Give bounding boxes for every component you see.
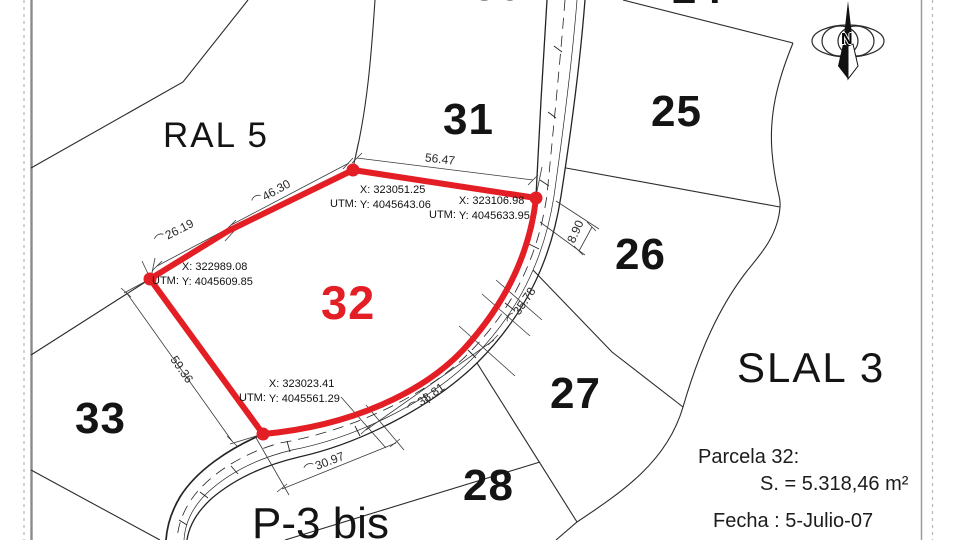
info-parcel-line: Parcela 32: (698, 447, 799, 467)
road-inner-edge-top (536, 0, 547, 196)
utm-x-value: X: 323051.25 (360, 183, 431, 198)
utm-callout-top-left-vertex: UTM: X: 323051.25 Y: 4045643.06 (330, 183, 431, 213)
compass-north-label: N (841, 31, 853, 49)
utm-callout-top-right-vertex: UTM: X: 323106.98 Y: 4045633.95 (429, 194, 530, 224)
utm-x-value: X: 323106.98 (459, 194, 530, 209)
plan-linework (0, 0, 960, 540)
utm-x-value: X: 323023.41 (269, 377, 340, 392)
utm-prefix: UTM: (152, 274, 179, 290)
dimension-56-47: 56.47 (423, 151, 455, 166)
info-area-line: S. = 5.318,46 m² (760, 474, 908, 494)
utm-y-value: Y: 4045643.06 (360, 198, 431, 213)
cadastral-plan: RAL 5 SLAL 3 P-3 bis 30 24 31 25 26 27 2… (0, 0, 960, 540)
utm-prefix: UTM: (330, 197, 357, 213)
parcel-number-24: 24 (672, 0, 723, 11)
vertex-dot (530, 192, 543, 205)
parcel-number-27: 27 (550, 372, 601, 416)
utm-y-value: Y: 4045609.85 (182, 275, 253, 290)
parcel-number-26: 26 (615, 233, 666, 277)
utm-prefix: UTM: (429, 208, 456, 224)
parcel-number-25: 25 (651, 90, 702, 134)
utm-prefix: UTM: (239, 391, 266, 407)
area-label-slal3: SLAL 3 (737, 347, 885, 389)
parcel-number-30: 30 (472, 0, 523, 8)
utm-y-value: Y: 4045633.95 (459, 209, 530, 224)
parcel-number-33: 33 (75, 397, 126, 441)
parcel-number-28: 28 (463, 464, 514, 508)
parcel-number-31: 31 (443, 98, 494, 142)
road-inner-edge-bottom (166, 434, 263, 540)
area-label-p3bis: P-3 bis (252, 502, 389, 540)
vertex-dot (257, 428, 270, 441)
vertex-dot (347, 164, 360, 177)
parcel-number-32-highlighted: 32 (321, 279, 375, 326)
utm-y-value: Y: 4045561.29 (269, 392, 340, 407)
info-date-line: Fecha : 5-Julio-07 (713, 511, 873, 531)
utm-callout-bottom-vertex: UTM: X: 323023.41 Y: 4045561.29 (239, 377, 340, 407)
parcel-boundaries (31, 0, 793, 540)
utm-callout-left-vertex: UTM: X: 322989.08 Y: 4045609.85 (152, 260, 253, 290)
utm-x-value: X: 322989.08 (182, 260, 253, 275)
area-label-ral5: RAL 5 (163, 118, 269, 153)
